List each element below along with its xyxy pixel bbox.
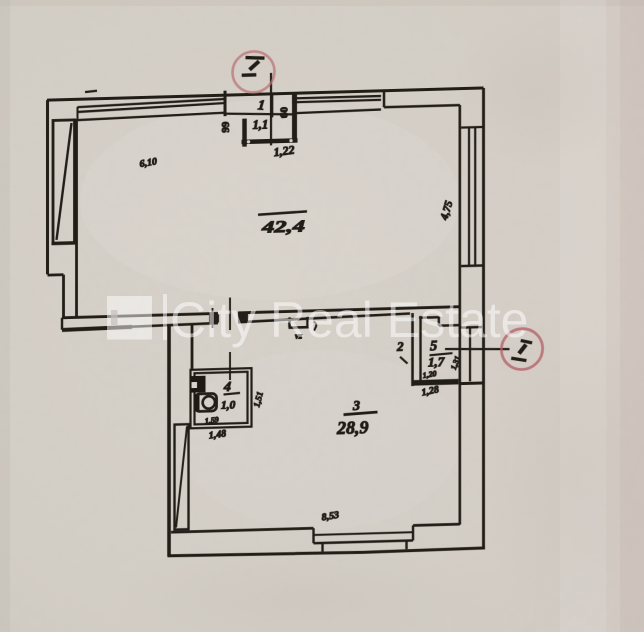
svg-text:3: 3	[352, 399, 360, 414]
svg-text:99: 99	[220, 121, 232, 133]
svg-text:1,0: 1,0	[221, 399, 236, 411]
svg-text:1,1: 1,1	[253, 117, 269, 131]
svg-text:1,48: 1,48	[208, 428, 227, 441]
svg-text:1,22: 1,22	[273, 143, 295, 160]
svg-text:1,7: 1,7	[428, 354, 445, 369]
svg-text:1,59: 1,59	[204, 415, 219, 426]
svg-text:28,9: 28,9	[336, 417, 368, 438]
svg-text:City Real Estate: City Real Estate	[170, 292, 528, 348]
svg-text:60: 60	[279, 106, 291, 118]
svg-text:42,4: 42,4	[261, 216, 305, 236]
